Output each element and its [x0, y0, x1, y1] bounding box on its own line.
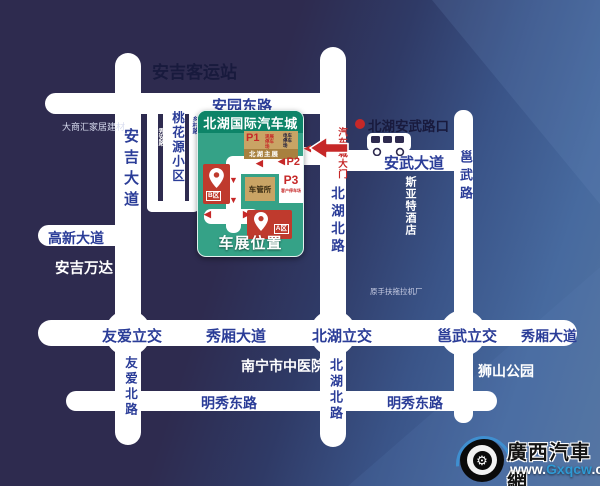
p2-label: P2 [287, 156, 300, 168]
road-taohuayuan-connector [147, 201, 199, 212]
p3-parking-box: P3 客户停车场 [279, 172, 303, 203]
route-arrow-down: ▼ [229, 196, 238, 205]
logo-url-domain: Gxqcw [546, 461, 591, 477]
road-label-youai-north: 友爱北路 [121, 356, 140, 418]
wheel-icon: ⚙ [460, 438, 504, 482]
road-label-beihu-north-upper: 北湖北路 [326, 186, 346, 256]
route-arrow-left: ◀ [256, 159, 263, 168]
logo-url: www.Gxqcw.com [510, 461, 600, 477]
venue-inset-map: 北湖国际汽车城 B区 P1 观展停车场 电车停车场 北湖主展 P2 [197, 110, 304, 257]
route-arrow-left: ◀ [204, 210, 211, 219]
bus-icon [366, 132, 412, 156]
route-map: 安园东路 安吉大道 桃花源小区 秀安路 乡村路 高新大道 安武大道 邕武路 北湖… [0, 0, 600, 486]
road-label-xiuan-lane: 秀安路 [156, 128, 165, 146]
label-hospital: 南宁市中医院 [241, 356, 325, 376]
zone-b-box: B区 [203, 164, 230, 204]
logo-url-www: www. [510, 461, 546, 477]
road-label-yongwu-interchange: 邕武立交 [437, 325, 497, 346]
route-arrow-down: ▼ [229, 176, 238, 185]
venue-caption: 车展位置 [198, 232, 303, 253]
road-label-youai-interchange: 友爱立交 [102, 325, 162, 346]
p1-note: 观展停车场 [265, 134, 275, 149]
venue-title: 北湖国际汽车城 [198, 111, 303, 133]
gxqcw-logo: ⚙ 廣西汽車網 www.Gxqcw.com [460, 436, 600, 484]
office-label: 车管所 [249, 184, 272, 195]
road-label-anji-avenue: 安吉大道 [120, 128, 141, 212]
road-label-beihu-interchange: 北湖立交 [312, 325, 372, 346]
label-lion-park: 狮山公园 [478, 361, 534, 381]
label-anji-bus-station: 安吉客运站 [152, 58, 237, 83]
p3-note: 客户停车场 [279, 188, 303, 193]
p2-note: 电车停车场 [283, 133, 293, 148]
label-anji-wanda: 安吉万达 [55, 257, 113, 278]
p3-label: P3 [279, 172, 303, 188]
road-taohuayuan-west-lane [147, 100, 158, 212]
road-label-beihu-north-lower: 北湖北路 [326, 358, 345, 422]
p1-parking-block: P1 观展停车场 电车停车场 北湖主展 P2 [244, 131, 298, 159]
office-box: 车管所 [245, 177, 275, 201]
main-hall-label: 北湖主展 [249, 148, 279, 158]
p1-label: P1 [246, 132, 259, 144]
road-label-xiuxiang-east: 秀厢大道 [521, 326, 577, 346]
location-pin-icon [209, 168, 224, 188]
logo-url-tld: .com [591, 461, 600, 477]
road-label-xiuxiang-west: 秀厢大道 [206, 325, 266, 346]
zone-b-label: B区 [206, 191, 221, 201]
road-label-mingxiu-east: 明秀东路 [387, 393, 443, 413]
label-siyate-hotel: 斯亚特酒店 [402, 176, 418, 236]
road-label-mingxiu-west: 明秀东路 [201, 393, 257, 413]
label-tractor-factory: 原手扶拖拉机厂 [370, 286, 423, 297]
label-taohuayuan: 桃花源小区 [168, 111, 187, 184]
road-yongwu-north [454, 110, 473, 333]
road-label-yongwu-road: 邕武路 [456, 150, 475, 204]
road-label-gaoxin-avenue: 高新大道 [48, 228, 104, 248]
route-arrow-left: ◀ [278, 157, 285, 166]
junction-dot [355, 119, 365, 129]
label-dashanghui: 大商汇家居建材 [62, 120, 125, 133]
location-pin-icon [254, 212, 268, 231]
route-arrow-right: ▶ [243, 210, 250, 219]
entrance-arrow-icon [309, 135, 349, 161]
